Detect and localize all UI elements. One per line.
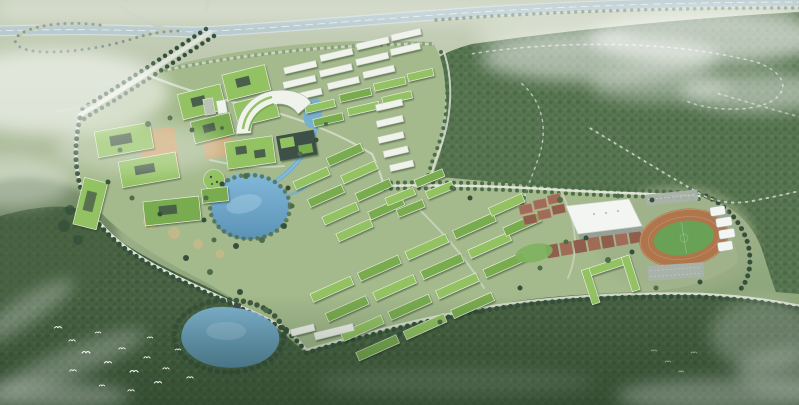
playground — [168, 227, 180, 239]
playground — [193, 239, 203, 249]
playground — [216, 250, 225, 259]
aerial-rendering — [0, 0, 799, 405]
viewport — [0, 0, 799, 405]
